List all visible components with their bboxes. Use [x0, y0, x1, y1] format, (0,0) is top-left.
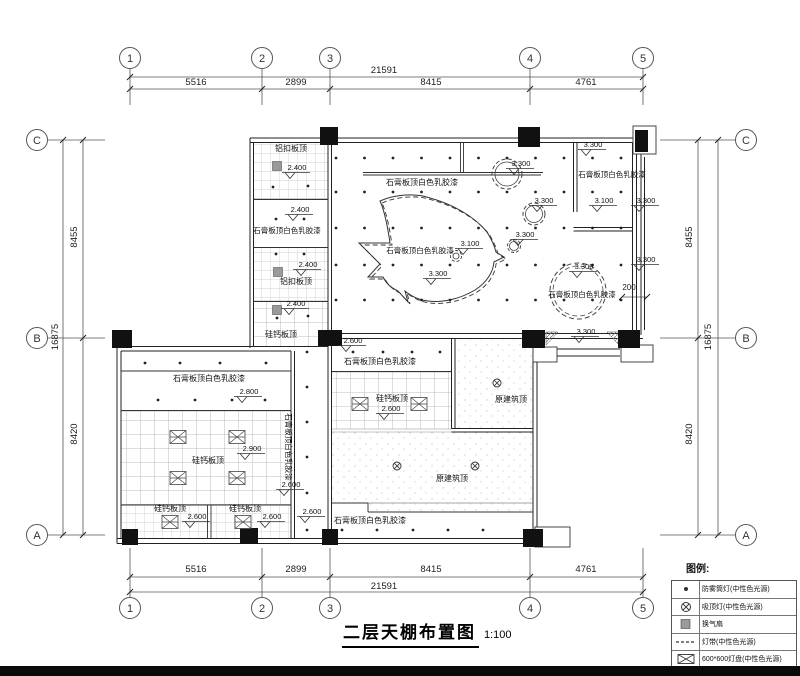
elevation-triangle [506, 169, 534, 175]
downlight-fixture [506, 227, 509, 230]
legend-row: 600*600灯盘(中性色光源) [672, 650, 796, 668]
elevation-triangle [297, 517, 325, 523]
grid-bubble-label: 1 [127, 603, 133, 615]
column [618, 330, 640, 348]
downlight-fixture [591, 191, 594, 194]
downlight-fixture [534, 157, 537, 160]
downlight-fixture [307, 315, 310, 318]
elevation-value: 2.400 [287, 299, 306, 308]
column [522, 330, 545, 348]
downlight-fixture [231, 399, 234, 402]
downlight-fixture [563, 299, 566, 302]
downlight-fixture [392, 227, 395, 230]
grid-bubble-label: A [33, 530, 41, 542]
legend-label: 换气扇 [700, 619, 723, 629]
legend-row: 防雾筒灯(中性色光源) [672, 581, 796, 598]
downlight-fixture [449, 264, 452, 267]
legend-row: 换气扇 [672, 615, 796, 633]
legend-title: 图例: [686, 560, 798, 575]
elevation-value: 3.100 [461, 239, 480, 248]
downlight-fixture [420, 264, 423, 267]
downlight-fixture [382, 351, 385, 354]
ceiling-finish-label: 硅钙板顶 [376, 393, 408, 403]
ceiling-finish-label: 原建筑顶 [436, 473, 468, 483]
dimension-text: 16875 [50, 324, 61, 350]
elevation-value: 2.800 [240, 387, 259, 396]
downlight-fixture [219, 362, 222, 365]
column [112, 330, 132, 348]
downlight-fixture [420, 191, 423, 194]
elevation-value: 2.600 [303, 507, 322, 516]
downlight-fixture [335, 191, 338, 194]
elevation-value: 3.100 [595, 196, 614, 205]
downlight-fixture [306, 351, 309, 354]
dimension-text: 5516 [185, 564, 206, 575]
downlight-fixture [477, 299, 480, 302]
elevation-value: 3.300 [637, 255, 656, 264]
ceiling-finish-label: 石膏板顶白色乳胶漆 [578, 169, 646, 179]
dimension-text: 8455 [69, 226, 80, 247]
downlight-fixture [449, 157, 452, 160]
elevation-value: 3.300 [584, 140, 603, 149]
elevation-triangle [578, 150, 606, 156]
legend: 图例: 防雾筒灯(中性色光源) 吸顶灯(中性色光源) 换气扇 灯带(中性色光源) [660, 560, 798, 669]
column [635, 130, 648, 152]
legend-table: 防雾筒灯(中性色光源) 吸顶灯(中性色光源) 换气扇 灯带(中性色光源) 600… [671, 580, 797, 669]
grid-bubble-label: 2 [259, 53, 265, 65]
ceiling-finish-label: 石膏板顶白色乳胶漆 [284, 413, 294, 481]
column [318, 330, 342, 346]
dimension-text: 200 [622, 283, 636, 292]
grid-bubble-label: 4 [527, 53, 533, 65]
dimension-text: 8415 [420, 564, 441, 575]
downlight-fixture [506, 299, 509, 302]
downlight-fixture [272, 186, 275, 189]
downlight-fixture [482, 529, 485, 532]
elevation-triangle [510, 240, 538, 246]
elevation-value: 2.600 [282, 480, 301, 489]
downlight-fixture [194, 399, 197, 402]
downlight-fixture [563, 157, 566, 160]
elevation-triangle [285, 215, 313, 221]
downlight-fixture [620, 264, 623, 267]
ceiling-finish-label: 石膏板顶白色乳胶漆 [386, 177, 458, 187]
grid-bubble-label: 2 [259, 603, 265, 615]
downlight-fixture [420, 299, 423, 302]
elevation-triangle [589, 206, 617, 212]
downlight-fixture [620, 157, 623, 160]
original-ceiling-area [368, 503, 533, 512]
grid-bubble-label: 5 [640, 603, 646, 615]
light-strip-icon [672, 634, 700, 651]
downlight-fixture [306, 529, 309, 532]
grid-bubble-label: 3 [327, 53, 333, 65]
ceiling-finish-label: 石膏板顶白色乳胶漆 [334, 515, 406, 525]
downlight-fixture [439, 351, 442, 354]
column [122, 529, 138, 545]
downlight-fixture [363, 264, 366, 267]
downlight-fixture [179, 362, 182, 365]
column [240, 528, 258, 544]
ceiling-finish-label: 石膏板顶白色乳胶漆 [253, 225, 321, 235]
column [523, 529, 543, 547]
downlight-fixture [363, 227, 366, 230]
downlight-fixture [563, 264, 566, 267]
downlight-fixture [392, 264, 395, 267]
legend-label: 防雾筒灯(中性色光源) [700, 584, 770, 594]
downlight-fixture [363, 299, 366, 302]
dimension-text: 16875 [703, 324, 714, 350]
downlight-fixture [477, 157, 480, 160]
exhaust-fan-fixture [273, 162, 282, 171]
elevation-triangle [234, 397, 262, 403]
downlight-fixture [352, 351, 355, 354]
downlight-fixture [447, 529, 450, 532]
downlight-fixture [392, 191, 395, 194]
column [320, 127, 338, 145]
dimension-text: 21591 [371, 581, 397, 592]
downlight-fixture [303, 218, 306, 221]
downlight-fixture [363, 191, 366, 194]
grid-bubble-label: A [742, 530, 750, 542]
downlight-fixture [307, 185, 310, 188]
downlight-fixture [264, 399, 267, 402]
grid-bubble-label: B [33, 333, 40, 345]
downlight-fixture [265, 362, 268, 365]
downlight-fixture [420, 157, 423, 160]
downlight-fixture [411, 351, 414, 354]
downlight-fixture [306, 386, 309, 389]
ceiling-finish-label: 石膏板顶白色乳胶漆 [386, 245, 454, 255]
ceiling-finish-label: 石膏板顶白色乳胶漆 [173, 373, 245, 383]
elevation-value: 3.300 [637, 196, 656, 205]
ceiling-finish-label: 硅钙板顶 [154, 503, 186, 513]
dimension-text: 8420 [684, 423, 695, 444]
downlight-fixture [506, 264, 509, 267]
downlight-fixture [392, 299, 395, 302]
elevation-triangle [529, 206, 557, 212]
drawing-scale: 1:100 [484, 629, 512, 641]
downlight-fixture [157, 399, 160, 402]
downlight-fixture [563, 227, 566, 230]
elevation-value: 2.600 [382, 404, 401, 413]
downlight-fixture [449, 191, 452, 194]
exhaust-fan-fixture [273, 306, 282, 315]
ceiling-finish-label: 硅钙板顶 [192, 455, 224, 465]
downlight-fixture [534, 191, 537, 194]
drawing-title: 二层天棚布置图 [342, 618, 479, 648]
dimension-text: 2899 [285, 77, 306, 88]
downlight-fixture [506, 157, 509, 160]
grid-bubble-label: C [742, 135, 750, 147]
grid-bubble-label: 5 [640, 53, 646, 65]
dimension-text: 4761 [575, 77, 596, 88]
elevation-value: 3.300 [577, 327, 596, 336]
dimension-text: 8420 [69, 423, 80, 444]
ceiling-finish-label: 石膏板顶白色乳胶漆 [548, 289, 616, 299]
downlight-fixture [412, 529, 415, 532]
elevation-value: 2.400 [299, 260, 318, 269]
grid-bubble-label: B [742, 333, 749, 345]
legend-label: 吸顶灯(中性色光源) [700, 602, 763, 612]
downlight-fixture [276, 317, 279, 320]
legend-row: 吸顶灯(中性色光源) [672, 598, 796, 616]
aluminum-panel-ceiling-area [254, 248, 329, 302]
exhaust-fan-fixture [274, 268, 283, 277]
downlight-fixture [306, 421, 309, 424]
ceiling-finish-label: 铝扣板顶 [275, 143, 307, 153]
downlight-fixture [591, 227, 594, 230]
grid-bubble-label: 1 [127, 53, 133, 65]
downlight-fixture [275, 253, 278, 256]
legend-label: 600*600灯盘(中性色光源) [700, 654, 782, 664]
drawing-sheet: 铝扣板顶石膏板顶白色乳胶漆铝扣板顶硅钙板顶石膏板顶白色乳胶漆石膏板顶白色乳胶漆石… [0, 0, 800, 676]
drawing-title-block: 二层天棚布置图1:100 [342, 618, 512, 648]
downlight-fixture [392, 157, 395, 160]
ceiling-finish-label: 石膏板顶白色乳胶漆 [344, 356, 416, 366]
elevation-value: 2.600 [263, 512, 282, 521]
downlight-fixture [303, 253, 306, 256]
downlight-fixture [335, 157, 338, 160]
elevation-value: 2.400 [288, 163, 307, 172]
elevation-value: 3.300 [535, 196, 554, 205]
legend-label: 灯带(中性色光源) [700, 637, 756, 647]
original-ceiling-area [455, 339, 533, 429]
elevation-value: 3.300 [516, 230, 535, 239]
elevation-triangle [571, 337, 599, 343]
downlight-fixture [449, 227, 452, 230]
sheet-bottom-bar [0, 666, 800, 676]
downlight-fixture [306, 492, 309, 495]
elevation-value: 2.900 [243, 444, 262, 453]
elevation-value: 2.600 [344, 336, 363, 345]
downlight-fixture [591, 299, 594, 302]
grid-bubble-label: 4 [527, 603, 533, 615]
downlight-fixture [420, 227, 423, 230]
elevation-triangle [423, 279, 451, 285]
downlight-fixture [335, 299, 338, 302]
dimension-text: 4761 [575, 564, 596, 575]
elevation-value: 3.300 [575, 262, 594, 271]
downlight-fixture [335, 264, 338, 267]
downlight-fixture [591, 157, 594, 160]
legend-row: 灯带(中性色光源) [672, 633, 796, 651]
ceiling-finish-label: 铝扣板顶 [280, 276, 312, 286]
downlight-fixture [477, 227, 480, 230]
elevation-value: 3.300 [429, 269, 448, 278]
elevation-triangle [455, 249, 483, 255]
elevation-triangle [338, 346, 366, 352]
grid-bubble-label: 3 [327, 603, 333, 615]
exhaust-fan-icon [672, 616, 700, 633]
downlight-fixture [144, 362, 147, 365]
grid-bubble-label: C [33, 135, 41, 147]
dimension-text: 8415 [420, 77, 441, 88]
downlight-fixture [449, 299, 452, 302]
downlight-fixture [477, 191, 480, 194]
ceiling-finish-label: 硅钙板顶 [265, 329, 297, 339]
ceiling-lamp-icon [672, 599, 700, 616]
downlight-fixture [275, 218, 278, 221]
elevation-value: 2.600 [188, 512, 207, 521]
downlight-fixture [534, 227, 537, 230]
downlight-fixture [563, 191, 566, 194]
downlight-fixture [376, 529, 379, 532]
elevation-value: 2.400 [291, 205, 310, 214]
downlight-fixture [341, 529, 344, 532]
ceiling-finish-label: 硅钙板顶 [229, 503, 261, 513]
downlight-fixture [534, 299, 537, 302]
downlight-fixture [620, 191, 623, 194]
downlight-fixture [363, 157, 366, 160]
column [518, 127, 540, 147]
elevation-triangle [569, 272, 597, 278]
downlight-fixture [620, 299, 623, 302]
downlight-fixture [335, 227, 338, 230]
elevation-value: 3.300 [512, 159, 531, 168]
dimension-text: 5516 [185, 77, 206, 88]
downlight-fixture [477, 264, 480, 267]
dimension-text: 8455 [684, 226, 695, 247]
downlight-fixture [620, 227, 623, 230]
downlight-dot-icon [672, 581, 700, 598]
ceiling-finish-label: 原建筑顶 [495, 394, 527, 404]
dimension-text: 21591 [371, 65, 397, 76]
downlight-fixture [534, 264, 537, 267]
downlight-fixture [306, 456, 309, 459]
downlight-fixture [506, 191, 509, 194]
column [322, 529, 338, 545]
original-ceiling-area [332, 432, 534, 503]
dimension-text: 2899 [285, 564, 306, 575]
